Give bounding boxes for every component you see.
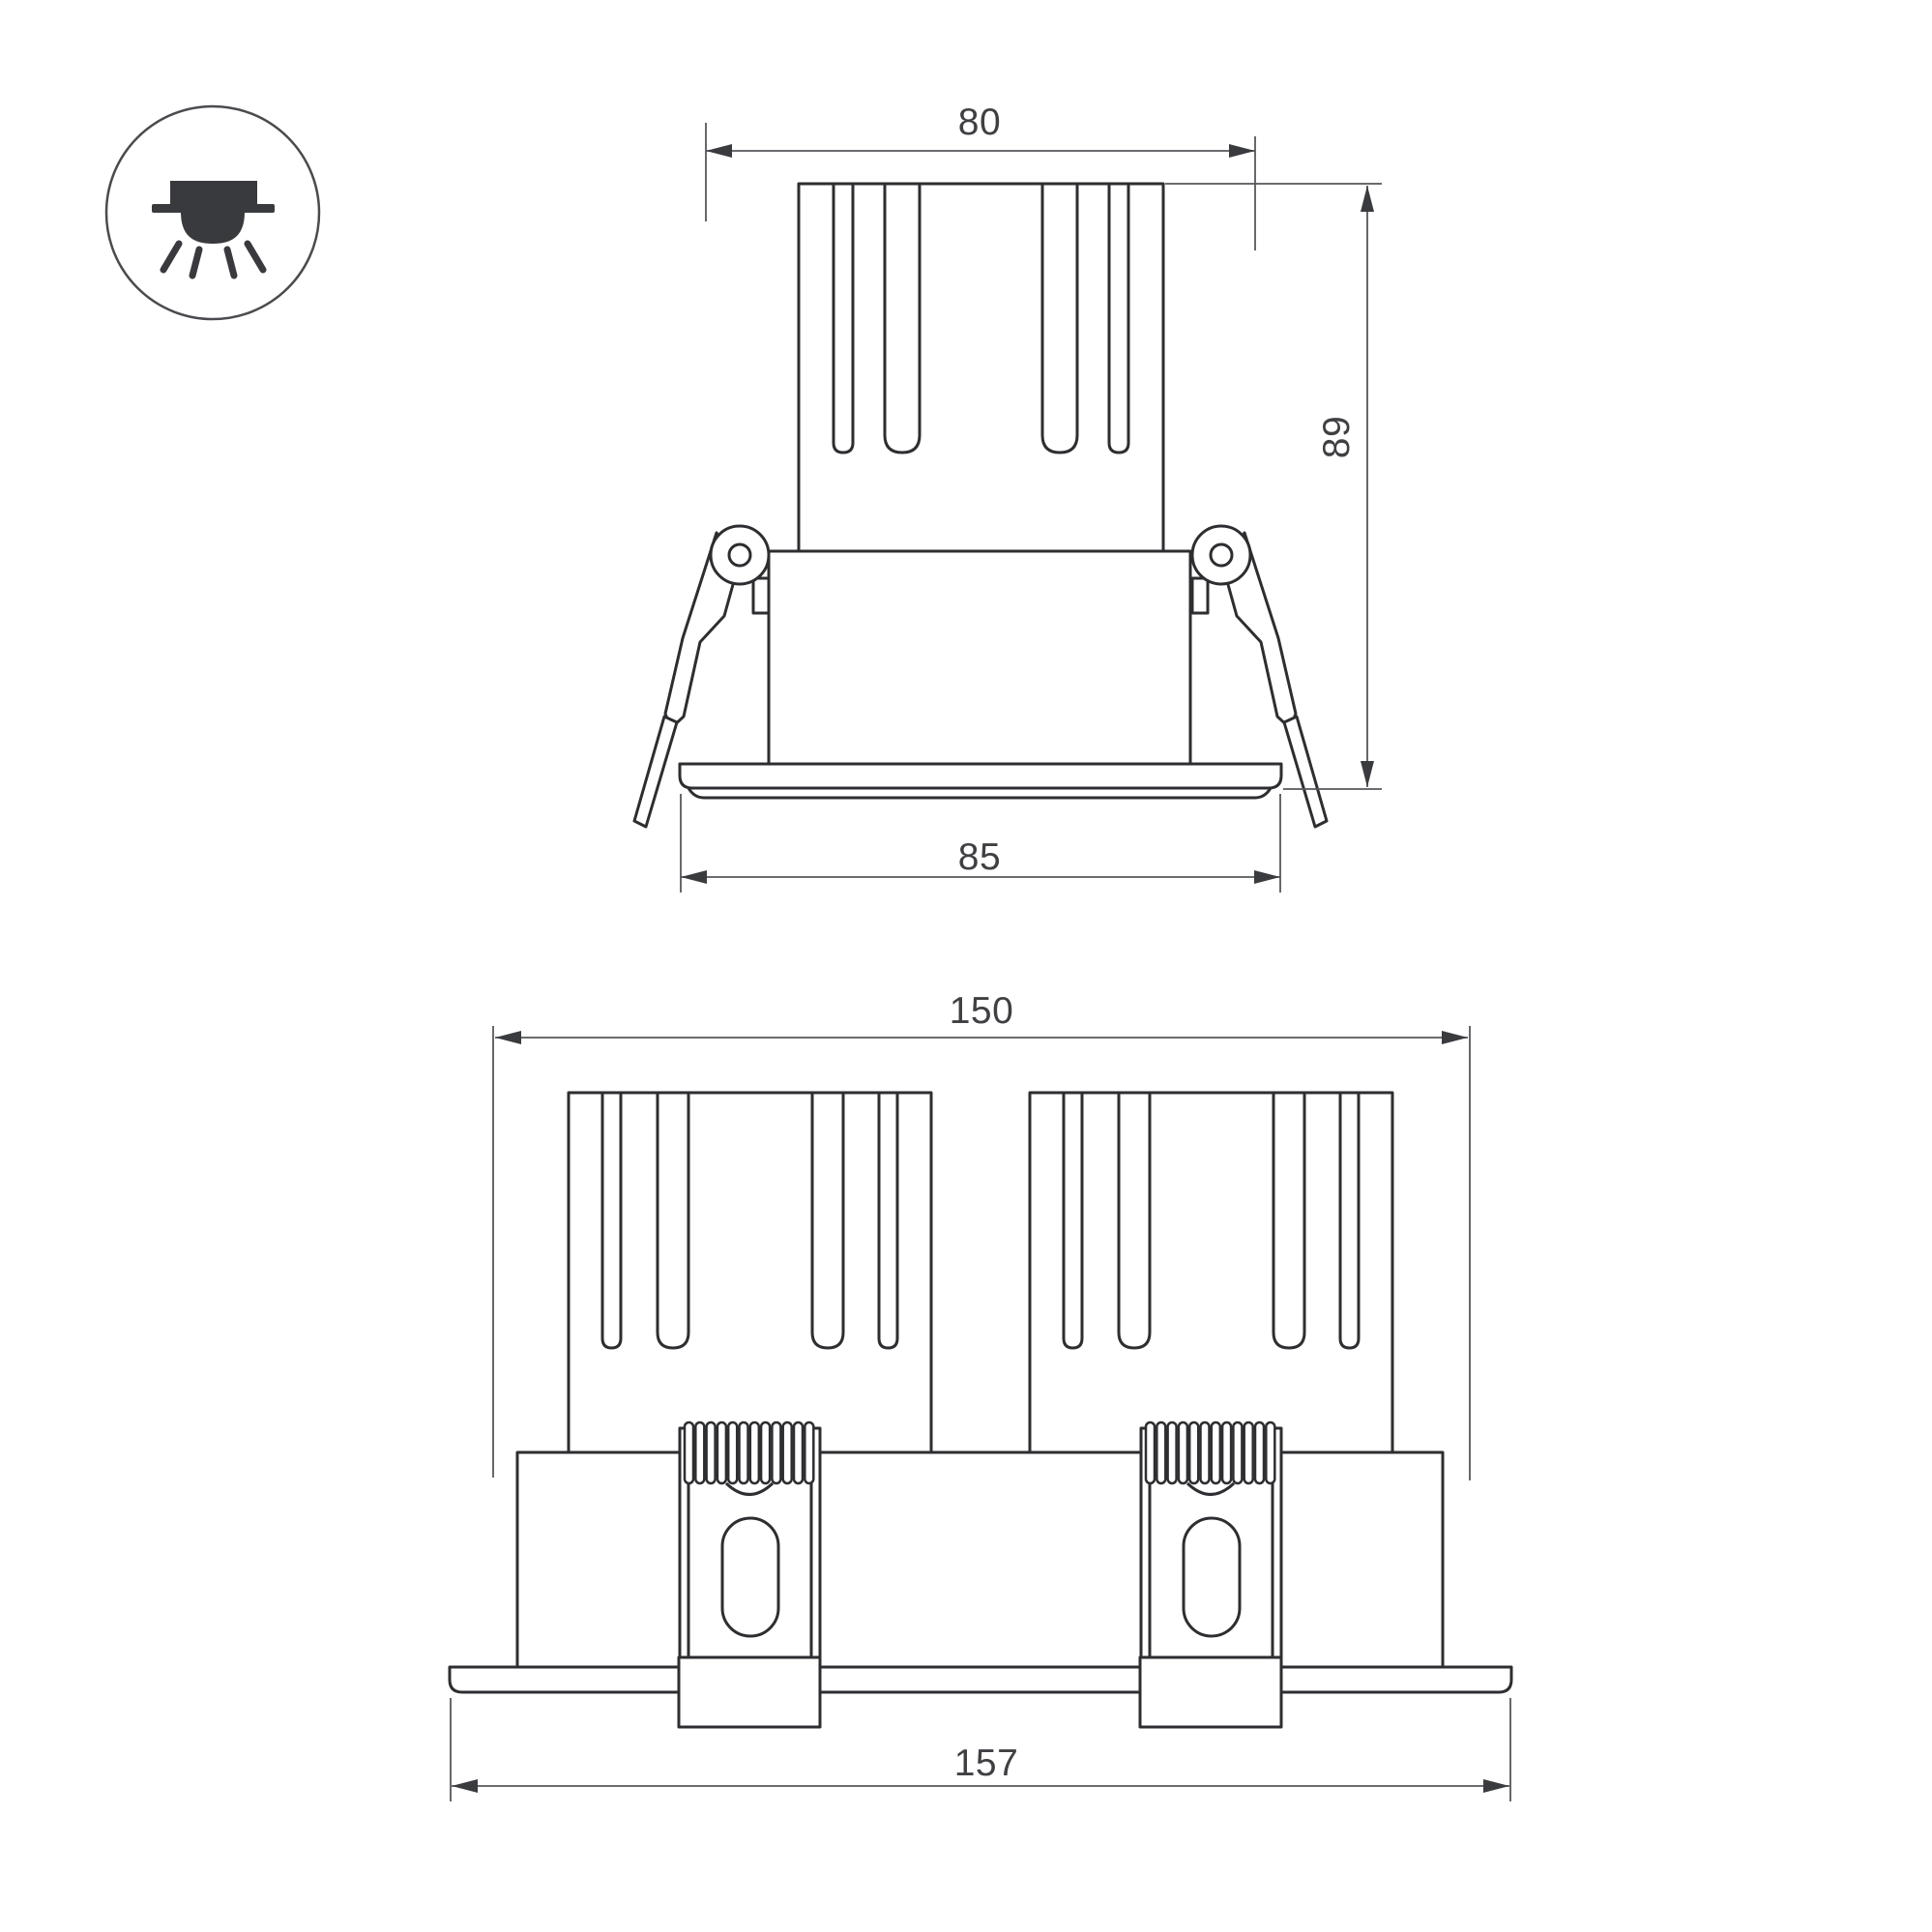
heatsink-fin-slot — [1042, 184, 1077, 453]
heatsink-fin-slot — [879, 1093, 897, 1348]
arrowhead-left — [452, 1779, 478, 1793]
icon-ceiling-flange — [152, 204, 275, 213]
lamp-body-outline — [769, 551, 1190, 764]
dim-label-height: 89 — [1316, 416, 1358, 458]
heatsink-block — [569, 1093, 931, 1452]
icon-light-ray — [227, 249, 234, 276]
heatsink-fin-slot — [812, 1093, 843, 1348]
icon-lamp-body — [170, 181, 257, 207]
arrowhead-right — [1483, 1779, 1509, 1793]
trim-flange — [450, 1667, 1511, 1692]
dim-label-top-width: 80 — [958, 102, 1001, 143]
arrowhead-left — [495, 1031, 521, 1044]
dimension-80: 80 — [706, 102, 1255, 250]
arrowhead-right — [1254, 870, 1280, 884]
knurled-screw — [685, 1422, 813, 1483]
clamp-slot — [722, 1518, 778, 1636]
clip-pivot-hole — [729, 544, 750, 566]
double-module-view: 150 157 — [450, 990, 1511, 1801]
arrowhead-left — [681, 870, 707, 884]
clip-bracket-tab — [753, 578, 769, 613]
arrowhead-left — [706, 144, 732, 158]
icon-light-ray — [248, 244, 263, 270]
icon-light-ray — [192, 249, 199, 276]
dimension-85: 85 — [681, 794, 1280, 893]
dim-label-flange-width: 85 — [958, 836, 1001, 878]
heatsink-fin-slot — [834, 184, 853, 453]
recessed-downlight-icon — [106, 106, 319, 319]
arrowhead-top — [1361, 186, 1374, 212]
clamp-foot — [679, 1657, 820, 1727]
arrowhead-bottom — [1361, 761, 1374, 787]
dim-label-top-width: 150 — [950, 990, 1014, 1032]
technical-drawing: 80 89 85 — [0, 0, 1932, 1932]
icon-lens-dome — [181, 212, 245, 244]
heatsink-fin-slot — [602, 1093, 621, 1348]
heatsink-fin-slot — [1109, 184, 1128, 453]
clip-needle-tip — [634, 717, 677, 827]
single-module-view: 80 89 85 — [634, 102, 1382, 893]
dimension-157: 157 — [451, 1698, 1510, 1801]
dim-label-flange-width: 157 — [954, 1742, 1019, 1784]
drawing-sheet: 80 89 85 — [0, 0, 1932, 1932]
twin-body-outline — [517, 1452, 1443, 1667]
clamp-assembly-right — [1140, 1422, 1281, 1727]
heatsink-outline — [569, 1093, 931, 1452]
arrowhead-right — [1442, 1031, 1468, 1044]
dimension-150: 150 — [493, 990, 1470, 1480]
icon-light-ray — [163, 244, 179, 270]
heatsink-fin-slot — [885, 184, 920, 453]
heatsink-block-right — [1030, 1093, 1392, 1452]
clamp-assembly — [679, 1422, 820, 1727]
heatsink-fin-slot — [658, 1093, 688, 1348]
trim-flange — [680, 764, 1281, 788]
arrowhead-right — [1229, 144, 1255, 158]
